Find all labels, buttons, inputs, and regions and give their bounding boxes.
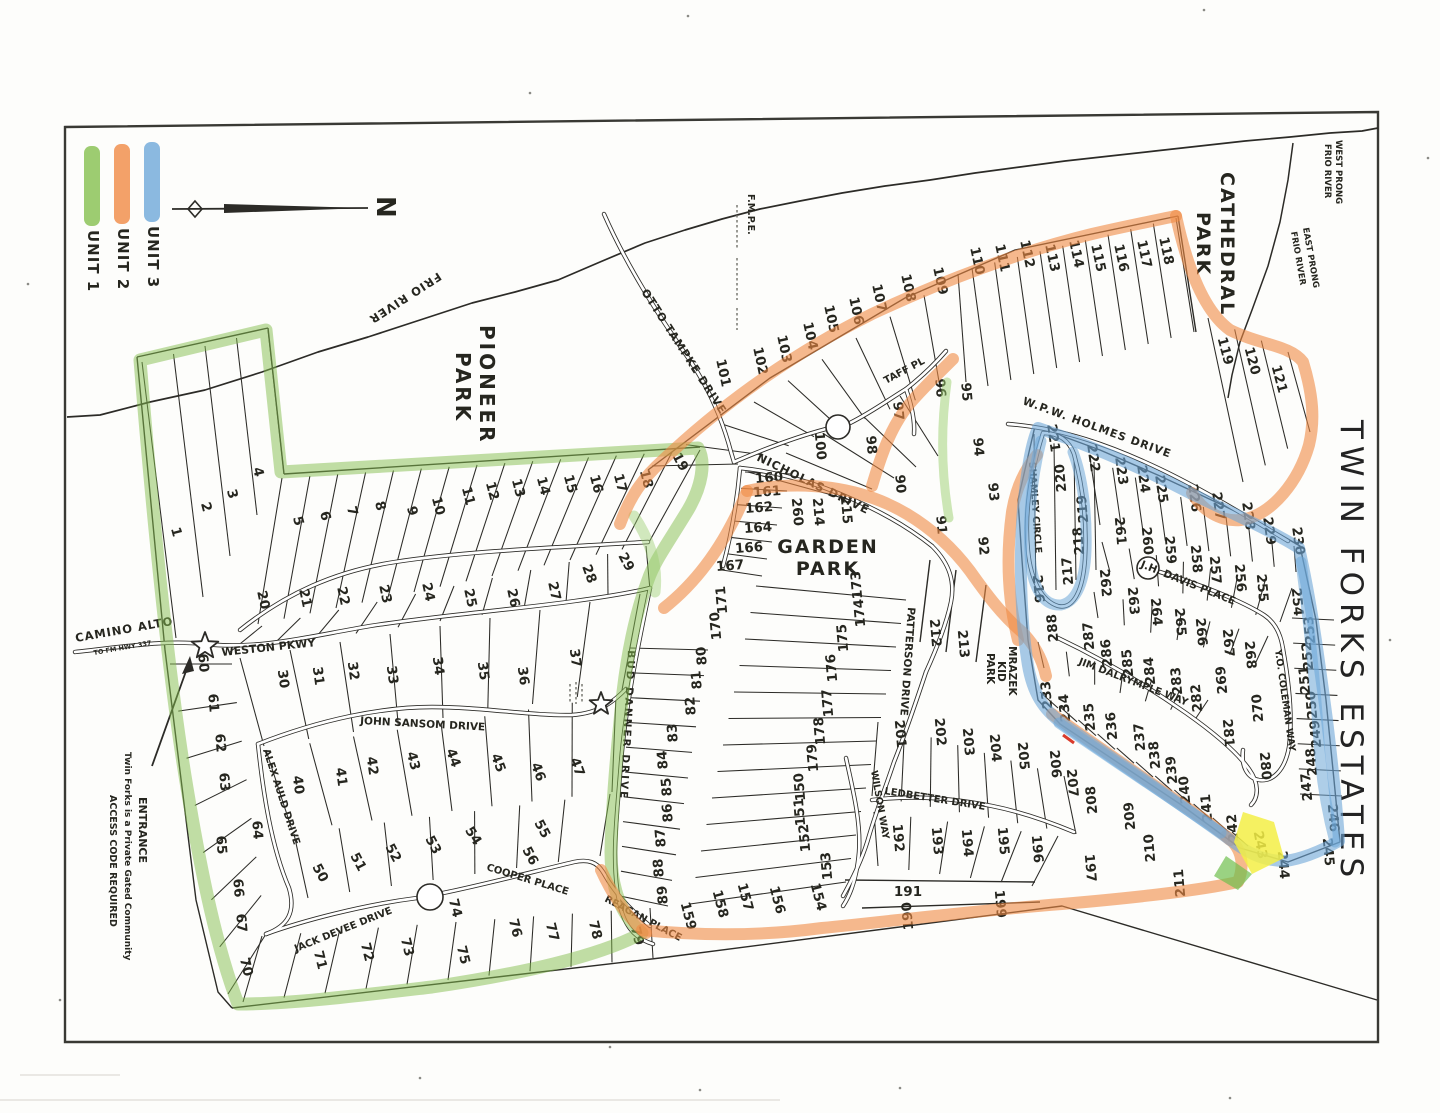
- lot-line: [745, 639, 896, 647]
- lot-line: [611, 911, 612, 963]
- lot-85: 85: [658, 777, 676, 797]
- cul-de-sac: [826, 415, 850, 439]
- legend-swatch-unit-3: [144, 142, 160, 222]
- cul-de-sac: [417, 884, 443, 910]
- lot-74: 74: [445, 897, 465, 919]
- lot-43: 43: [403, 750, 423, 772]
- lot-62: 62: [211, 733, 229, 753]
- lot-1: 1: [167, 525, 185, 538]
- lot-line: [756, 586, 906, 600]
- speckle: [609, 1046, 612, 1049]
- street-taff-pl: TAFF PL: [882, 356, 927, 387]
- north-label: N: [370, 196, 400, 218]
- lot-50: 50: [309, 861, 332, 885]
- legend-label-unit-2: UNIT 2: [114, 228, 132, 290]
- speckle: [687, 15, 690, 18]
- lot-line: [707, 812, 862, 825]
- lot-line: [890, 317, 915, 401]
- lot-line: [440, 465, 477, 587]
- lot-87: 87: [652, 828, 670, 848]
- lot-260: 260: [788, 497, 806, 526]
- lot-17: 17: [610, 472, 630, 494]
- lot-63: 63: [215, 772, 233, 792]
- lot-264: 264: [1147, 597, 1165, 626]
- speckle: [529, 92, 532, 95]
- lot-34: 34: [429, 656, 447, 677]
- lot-line: [972, 268, 988, 386]
- lot-line: [205, 346, 230, 556]
- lot-209: 209: [1121, 801, 1139, 830]
- entrance-arrow-head: [182, 656, 194, 674]
- lot-178: 178: [811, 716, 829, 745]
- speckle: [59, 999, 62, 1002]
- lot-66: 66: [229, 878, 247, 898]
- lot-92: 92: [974, 536, 992, 556]
- lot-line: [1094, 592, 1098, 618]
- lot-line: [397, 730, 412, 816]
- legend-label-unit-3: UNIT 3: [144, 226, 162, 288]
- lot-202: 202: [931, 717, 949, 746]
- lot-280: 280: [1256, 751, 1274, 780]
- lot-33: 33: [383, 665, 401, 686]
- lot-158: 158: [709, 888, 732, 919]
- lot-line: [1102, 542, 1110, 572]
- lot-line: [529, 710, 533, 802]
- lot-170: 170: [707, 611, 725, 640]
- lot-88: 88: [650, 858, 668, 878]
- lot-40: 40: [289, 775, 307, 796]
- speckle: [899, 1087, 902, 1090]
- lot-52: 52: [382, 841, 405, 865]
- lot-195: 195: [994, 826, 1012, 855]
- lot-53: 53: [422, 833, 445, 857]
- street-john-sansom-drive: JOHN SANSOM DRIVE: [359, 715, 486, 734]
- lot-67: 67: [232, 913, 250, 933]
- lot-35: 35: [474, 661, 492, 682]
- lot-line: [1129, 549, 1134, 580]
- lot-95: 95: [957, 382, 975, 402]
- lot-197: 197: [1081, 853, 1099, 882]
- lot-41: 41: [332, 767, 350, 788]
- lot-65: 65: [212, 835, 230, 855]
- lot-line: [240, 658, 264, 746]
- lot-214: 214: [809, 497, 827, 526]
- lot-175: 175: [834, 623, 852, 652]
- lot-84: 84: [654, 750, 672, 770]
- lot-207: 207: [1063, 768, 1081, 797]
- lot-256: 256: [1231, 563, 1249, 592]
- lot-line: [751, 613, 902, 624]
- lot-282: 282: [1188, 683, 1206, 712]
- park-strip-highlight: [943, 382, 949, 518]
- lot-152: 152: [796, 823, 814, 852]
- park-cathedral-label-1: CATHEDRAL: [1216, 172, 1238, 316]
- lot-line: [754, 402, 814, 437]
- street-yo-coleman-way: Y.O. COLEMAN WAY: [1272, 648, 1297, 752]
- lot-193: 193: [928, 826, 946, 855]
- lot-line: [310, 474, 338, 613]
- park-mrazek-label-3: PARK: [984, 653, 996, 685]
- lot-208: 208: [1083, 785, 1101, 814]
- lot-238: 238: [1146, 740, 1164, 769]
- lot-154: 154: [807, 881, 830, 912]
- lot-260: 260: [1138, 526, 1156, 555]
- street-otto-tampke-drive: OTTO TAMPKE DRIVE: [638, 287, 729, 417]
- lot-255: 255: [1253, 573, 1271, 602]
- lot-210: 210: [1141, 833, 1159, 862]
- label-fmpe: F.M.P.E.: [745, 194, 756, 235]
- lot-line: [492, 461, 533, 576]
- lot-258: 258: [1187, 544, 1205, 573]
- lot-206: 206: [1046, 749, 1064, 778]
- lot-line: [558, 800, 565, 862]
- lot-line: [624, 797, 684, 804]
- lot-236: 236: [1103, 711, 1121, 740]
- lot-line: [856, 338, 890, 409]
- lot-101: 101: [712, 358, 734, 389]
- lot-288: 288: [1044, 613, 1062, 642]
- lot-46: 46: [527, 760, 548, 783]
- lot-55: 55: [531, 817, 554, 841]
- street-weston-pkwy: WESTON PKWY: [221, 636, 317, 659]
- lot-61: 61: [204, 693, 222, 713]
- lot-78: 78: [585, 919, 605, 941]
- lot-37: 37: [566, 648, 584, 669]
- lot-235: 235: [1081, 702, 1099, 731]
- lot-13: 13: [508, 477, 528, 499]
- legend-label-unit-1: UNIT 1: [84, 230, 102, 292]
- lot-3: 3: [223, 487, 241, 500]
- lot-118: 118: [1155, 236, 1177, 267]
- lot-line: [310, 743, 332, 825]
- lot-287: 287: [1080, 621, 1098, 650]
- lot-21: 21: [295, 587, 315, 609]
- lot-171: 171: [713, 585, 731, 614]
- lot-86: 86: [659, 803, 677, 823]
- lot-270: 270: [1249, 693, 1267, 722]
- lot-7: 7: [343, 504, 361, 517]
- lot-266: 266: [1192, 617, 1210, 646]
- lot-82: 82: [682, 696, 700, 716]
- lot-30: 30: [274, 669, 292, 690]
- legend-swatch-unit-1: [84, 146, 100, 226]
- note-entrance-2: Twin Forks is a Private Gated Community: [122, 752, 132, 961]
- lot-220: 220: [1052, 463, 1070, 492]
- lot-269: 269: [1213, 665, 1231, 694]
- lot-31: 31: [309, 666, 327, 687]
- speckle: [1229, 1097, 1232, 1100]
- lot-24: 24: [418, 581, 438, 603]
- lot-54: 54: [461, 824, 485, 848]
- lot-70: 70: [236, 956, 256, 978]
- label-frio-river: FRIO RIVER: [366, 269, 444, 326]
- speckle: [27, 283, 30, 286]
- lot-line: [388, 469, 421, 598]
- lot-196: 196: [1028, 834, 1046, 863]
- lot-56: 56: [519, 844, 542, 868]
- lot-153: 153: [818, 851, 836, 880]
- lot-line: [822, 359, 865, 418]
- boundary-line: [845, 880, 1035, 882]
- lot-36: 36: [514, 666, 532, 687]
- lot-26: 26: [503, 587, 523, 609]
- lot-2: 2: [197, 500, 215, 513]
- lot-83: 83: [664, 723, 682, 743]
- lot-14: 14: [533, 475, 553, 497]
- lot-151: 151: [791, 797, 809, 826]
- lot-281: 281: [1219, 718, 1237, 747]
- lot-64: 64: [248, 820, 266, 840]
- lot-257: 257: [1206, 555, 1224, 584]
- park-pioneer-label-1: PIONEER: [475, 325, 499, 445]
- lot-5: 5: [289, 514, 307, 527]
- lot-line: [1094, 462, 1096, 570]
- lot-line: [1181, 497, 1187, 546]
- speckle: [1389, 639, 1392, 642]
- lot-213: 213: [954, 629, 972, 658]
- lot-42: 42: [363, 756, 381, 777]
- lot-164: 164: [743, 519, 772, 537]
- lot-line: [524, 570, 531, 609]
- lot-261: 261: [1111, 516, 1129, 545]
- lot-177: 177: [819, 688, 837, 717]
- lot-line: [701, 835, 856, 851]
- scanned-plat-page: TWIN FORKS ESTATES 123456789101112131415…: [0, 0, 1440, 1113]
- lot-93: 93: [984, 482, 1002, 502]
- lot-51: 51: [347, 850, 370, 874]
- plat-map: 1234567891011121314151617181920212223242…: [0, 0, 1440, 1113]
- lot-194: 194: [958, 828, 976, 857]
- lot-121: 121: [1268, 363, 1291, 394]
- lot-265: 265: [1171, 607, 1189, 636]
- lot-12: 12: [482, 480, 502, 502]
- lot-line: [712, 788, 866, 798]
- lot-203: 203: [959, 727, 977, 756]
- lot-45: 45: [487, 751, 508, 774]
- lot-263: 263: [1124, 586, 1142, 615]
- lot-204: 204: [986, 733, 1004, 762]
- lot-80: 80: [693, 646, 711, 666]
- street-camino-alto-sub: TO FM HWY 337: [93, 639, 152, 657]
- lot-line: [1261, 341, 1287, 449]
- park-garden-label-1: GARDEN: [777, 536, 879, 558]
- note-entrance-3: ACCESS CODE REQUIRED: [107, 795, 118, 927]
- lot-156: 156: [766, 884, 789, 915]
- lot-201: 201: [891, 719, 909, 748]
- lot-32: 32: [344, 661, 362, 682]
- lot-44: 44: [442, 746, 463, 769]
- lot-94: 94: [969, 437, 987, 457]
- lot-line: [723, 741, 876, 745]
- lot-81: 81: [688, 670, 706, 690]
- lot-line: [596, 454, 644, 555]
- lot-line: [909, 817, 911, 870]
- lot-25: 25: [460, 587, 480, 609]
- lot-11: 11: [458, 485, 478, 507]
- lot-166: 166: [734, 539, 763, 557]
- lot-77: 77: [542, 921, 562, 943]
- park-garden-label-2: PARK: [796, 558, 860, 580]
- lot-100: 100: [811, 431, 829, 460]
- lot-line: [734, 692, 886, 694]
- lot-line: [627, 722, 696, 726]
- lot-8: 8: [371, 499, 389, 512]
- lot-267: 267: [1219, 628, 1237, 657]
- lot-line: [489, 919, 495, 975]
- label-west-prong-1: WEST PRONG: [1333, 140, 1343, 204]
- lot-47: 47: [566, 755, 587, 778]
- lot-157: 157: [734, 881, 757, 912]
- lot-line: [354, 737, 373, 821]
- lot-167: 167: [715, 557, 744, 575]
- label-west-prong-2: FRIO RIVER: [1322, 144, 1332, 199]
- park-pioneer-label-2: PARK: [451, 352, 475, 423]
- lot-line: [517, 805, 520, 868]
- lot-line: [995, 262, 1011, 380]
- lot-174: 174: [851, 598, 869, 627]
- lot-line: [1017, 257, 1033, 374]
- lot-line: [729, 718, 882, 719]
- lot-20: 20: [253, 589, 273, 611]
- lot-line: [1066, 652, 1069, 677]
- speckle: [1427, 157, 1430, 160]
- lot-27: 27: [544, 580, 564, 602]
- lot-9: 9: [403, 504, 421, 517]
- speckle: [1203, 9, 1206, 12]
- lot-line: [518, 459, 561, 570]
- lot-23: 23: [375, 583, 395, 605]
- note-entrance-1: ENTRANCE: [136, 797, 149, 863]
- lot-179: 179: [804, 743, 822, 772]
- lot-71: 71: [310, 949, 330, 971]
- lot-191: 191: [894, 884, 922, 900]
- lot-6: 6: [316, 509, 334, 522]
- north-arrow-head: [224, 204, 366, 213]
- lot-72: 72: [357, 941, 377, 963]
- lot-89: 89: [654, 885, 672, 905]
- lot-217: 217: [1059, 556, 1077, 585]
- lot-212: 212: [926, 618, 944, 647]
- lot-line: [1249, 526, 1253, 561]
- lot-90: 90: [891, 474, 909, 494]
- lot-75: 75: [453, 944, 473, 966]
- lot-262: 262: [1096, 568, 1114, 597]
- lot-205: 205: [1014, 741, 1032, 770]
- lot-line: [625, 772, 688, 778]
- lot-line: [566, 562, 569, 602]
- lot-76: 76: [505, 917, 525, 939]
- lot-line: [174, 354, 204, 597]
- lot-268: 268: [1241, 640, 1259, 669]
- lot-line: [533, 610, 541, 704]
- lot-259: 259: [1161, 535, 1179, 564]
- lot-29: 29: [615, 550, 638, 574]
- lot-10: 10: [428, 495, 448, 517]
- lot-line: [740, 666, 892, 671]
- lot-line: [958, 274, 966, 382]
- lot-176: 176: [823, 653, 841, 682]
- lot-115: 115: [1087, 243, 1109, 274]
- speckle: [699, 1089, 702, 1092]
- lot-line: [1123, 599, 1124, 625]
- legend-swatch-unit-2: [114, 144, 130, 224]
- lot-28: 28: [578, 562, 599, 585]
- lot-22: 22: [333, 585, 353, 607]
- lot-15: 15: [560, 473, 580, 495]
- lot-73: 73: [397, 936, 417, 958]
- lot-16: 16: [586, 473, 606, 495]
- speckle: [419, 1077, 422, 1080]
